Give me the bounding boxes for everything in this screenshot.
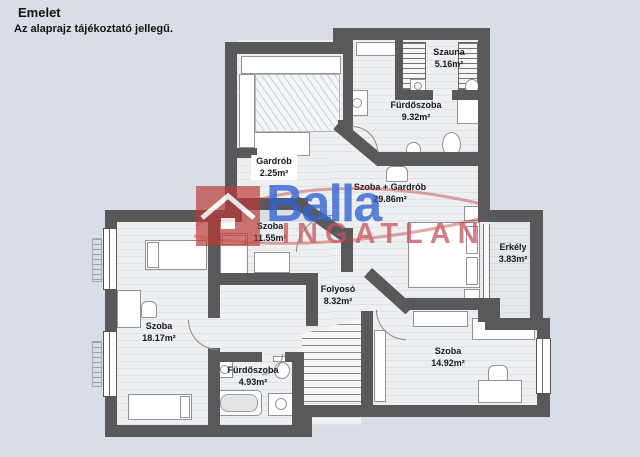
room-name: Szoba	[142, 321, 176, 333]
room-area: 3.83m²	[499, 254, 528, 266]
room-name: Erkély	[499, 242, 528, 254]
room-name: Gardrób	[256, 156, 292, 168]
room-label-szauna: Szauna 5.16m²	[433, 47, 465, 70]
room-label-erkely: Erkély 3.83m²	[499, 242, 528, 265]
room-label-furdoszoba-kis: Fürdőszoba 4.93m²	[228, 365, 279, 388]
room-area: 5.16m²	[433, 59, 465, 71]
room-area: 18.17m²	[142, 333, 176, 345]
house-icon	[196, 186, 260, 246]
watermark-logo: Balla INGATLAN	[196, 180, 496, 264]
room-area: 9.32m²	[391, 112, 442, 124]
room-name: Folyosó	[321, 284, 356, 296]
room-label-szoba-18: Szoba 18.17m²	[142, 321, 176, 344]
room-label-furdoszoba-nagy: Fürdőszoba 9.32m²	[391, 100, 442, 123]
room-area: 14.92m²	[431, 358, 465, 370]
room-area: 4.93m²	[228, 377, 279, 389]
room-name: Szauna	[433, 47, 465, 59]
room-area: 8.32m²	[321, 296, 356, 308]
brand-subtitle: INGATLAN	[282, 220, 486, 249]
room-label-szoba-14: Szoba 14.92m²	[431, 346, 465, 369]
room-label-folyoso: Folyosó 8.32m²	[321, 284, 356, 307]
room-name: Szoba	[431, 346, 465, 358]
room-name: Fürdőszoba	[228, 365, 279, 377]
room-name: Fürdőszoba	[391, 100, 442, 112]
floorplan-canvas: Emelet Az alaprajz tájékoztató jellegű. …	[0, 0, 640, 457]
